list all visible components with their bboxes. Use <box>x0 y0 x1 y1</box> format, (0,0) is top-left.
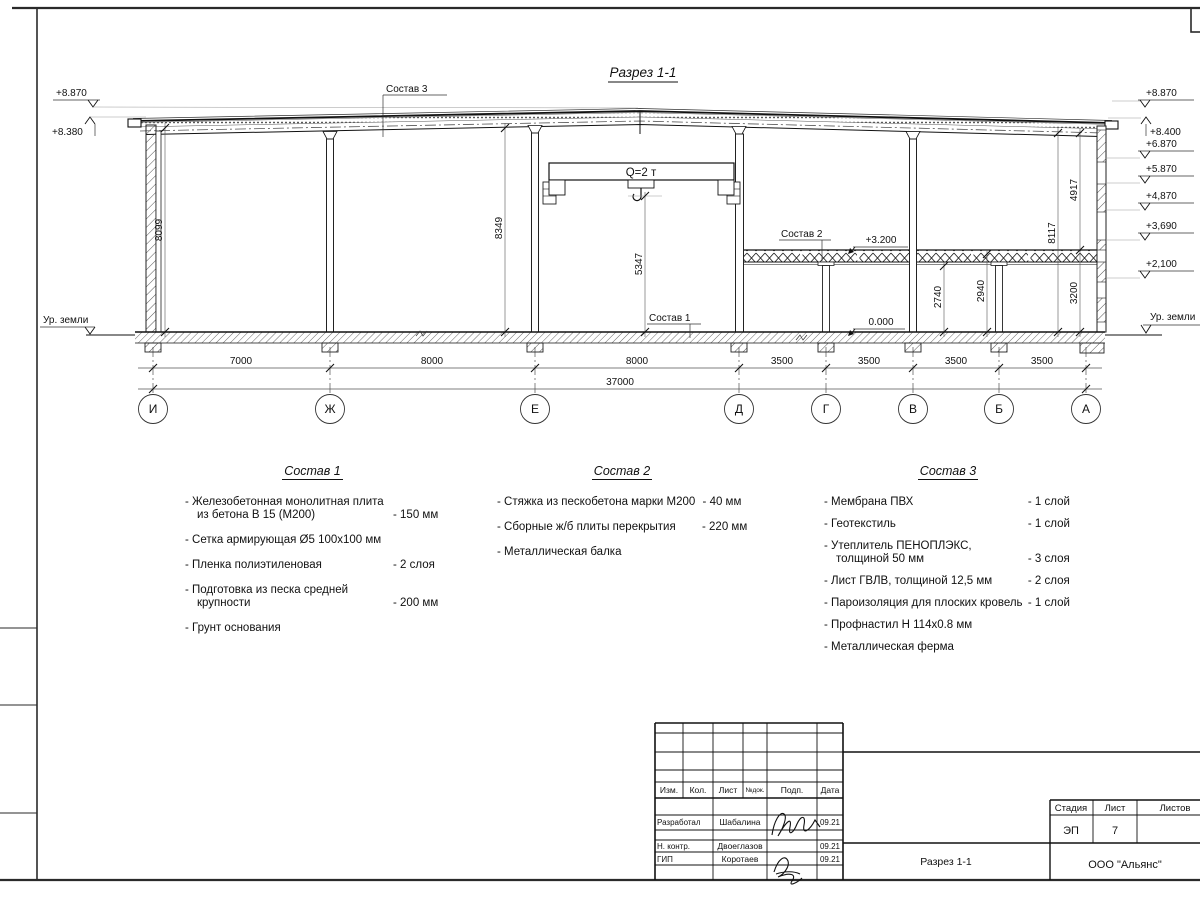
column-zh <box>327 139 334 332</box>
list-item: - Пленка полиэтиленовая - 2 слоя <box>185 559 440 572</box>
stamp-name: Коротаев <box>722 854 759 864</box>
list-item: - Железобетонная монолитная плитаиз бето… <box>185 496 440 522</box>
svg-text:8349: 8349 <box>494 216 505 239</box>
stamp-role: Н. контр. <box>657 842 690 851</box>
stamp-role: Разработал <box>657 818 701 827</box>
composition-callouts: Состав 3 Состав 2 Состав 1 <box>383 84 831 338</box>
stamp-company: ООО "Альянс" <box>1088 859 1162 871</box>
svg-text:Листов: Листов <box>1160 803 1191 814</box>
svg-text:3500: 3500 <box>858 356 881 367</box>
ground-label: Ур. земли <box>1150 312 1195 323</box>
svg-text:+5.870: +5.870 <box>1146 164 1177 175</box>
ground-label: Ур. земли <box>43 315 88 326</box>
signatures <box>772 813 820 884</box>
composition-list-3: Состав 3 - Мембрана ПВХ - 1 слой - Геоте… <box>824 465 1072 663</box>
crane-hoist <box>628 180 654 188</box>
axis-bubbles: И Ж Е Д Г В Б А <box>139 395 1101 424</box>
stamp-date: 09.21 <box>820 818 841 827</box>
composition-title: Состав 2 <box>497 465 747 478</box>
svg-text:Е: Е <box>531 402 539 416</box>
svg-text:8000: 8000 <box>626 356 649 367</box>
svg-text:+6.870: +6.870 <box>1146 139 1177 150</box>
list-item: - Мембрана ПВХ - 1 слой <box>824 496 1072 509</box>
composition-title: Состав 3 <box>824 465 1072 478</box>
svg-text:2740: 2740 <box>933 285 944 308</box>
list-item: - Грунт основания <box>185 622 440 635</box>
section-drawing: Разрез 1-1 <box>0 0 1200 900</box>
total-dimension: 37000 <box>606 377 634 388</box>
structure <box>146 125 1106 332</box>
list-item: - Сборные ж/б плиты перекрытия - 220 мм <box>497 521 747 534</box>
eave-right <box>1105 121 1118 129</box>
svg-text:Лист: Лист <box>719 785 738 795</box>
svg-text:ЭП: ЭП <box>1063 825 1079 837</box>
svg-text:3500: 3500 <box>1031 356 1054 367</box>
svg-text:7000: 7000 <box>230 356 253 367</box>
stamp-role: ГИП <box>657 855 673 864</box>
svg-text:Б: Б <box>995 402 1003 416</box>
list-item: - Стяжка из пескобетона марки М200 - 40 … <box>497 496 747 509</box>
svg-text:Стадия: Стадия <box>1055 803 1087 814</box>
svg-text:3500: 3500 <box>945 356 968 367</box>
svg-text:И: И <box>149 402 158 416</box>
column-e <box>532 133 539 332</box>
vertical-dimensions: 8099 8349 5347 8117 4917 3200 2740 2940 <box>154 123 1084 337</box>
stamp-doc-name: Разрез 1-1 <box>920 856 972 868</box>
elevation-label: +8.870 <box>56 88 87 99</box>
drawing-sheet: Разрез 1-1 <box>0 0 1200 900</box>
svg-text:+8.400: +8.400 <box>1150 127 1181 138</box>
crane-hook-icon <box>633 188 641 201</box>
stamp-date: 09.21 <box>820 855 841 864</box>
list-item: - Металлическая ферма <box>824 641 1072 654</box>
column-d <box>736 134 744 332</box>
crane-capacity-label: Q=2 т <box>626 167 657 179</box>
composition-list-2: Состав 2 - Стяжка из пескобетона марки М… <box>497 465 747 571</box>
foundation-pads <box>145 343 1104 353</box>
svg-text:Кол.: Кол. <box>690 785 707 795</box>
svg-text:8099: 8099 <box>154 218 165 241</box>
svg-text:5347: 5347 <box>634 252 645 275</box>
elevation-marks-right: +8.870 +8.400 +6.870 +5.870 +4,870 +3,69… <box>1106 88 1200 333</box>
svg-text:3500: 3500 <box>771 356 794 367</box>
post-b <box>996 266 1003 333</box>
floor <box>86 331 1162 353</box>
list-item: - Пароизоляция для плоских кровель - 1 с… <box>824 597 1072 610</box>
stamp-name: Двоеглазов <box>717 841 763 851</box>
svg-text:2940: 2940 <box>976 279 987 302</box>
list-item: - Подготовка из песка среднейкрупности -… <box>185 584 440 610</box>
composition-list-1: Состав 1 - Железобетонная монолитная пли… <box>185 465 440 647</box>
list-item: - Геотекстиль - 1 слой <box>824 518 1072 531</box>
bottom-dimensions: 7000 8000 8000 3500 3500 3500 3500 37000 <box>138 347 1102 393</box>
svg-text:8000: 8000 <box>421 356 444 367</box>
column-v <box>910 139 917 332</box>
svg-text:Дата: Дата <box>821 785 840 795</box>
roof-deck-band <box>133 113 1112 130</box>
svg-text:Изм.: Изм. <box>660 785 678 795</box>
slab-level-label: +3.200 <box>866 235 897 246</box>
stamp-name: Шабалина <box>719 817 760 827</box>
svg-text:4917: 4917 <box>1069 178 1080 201</box>
callout-sostav3: Состав 3 <box>386 84 428 95</box>
callout-sostav1: Состав 1 <box>649 313 691 324</box>
callout-sostav2: Состав 2 <box>781 229 823 240</box>
roof-bottom-chord <box>146 125 1100 137</box>
svg-text:Д: Д <box>735 402 743 416</box>
stamp-date: 09.21 <box>820 842 841 851</box>
frame-corner-box <box>1191 8 1200 32</box>
post-g <box>823 266 830 333</box>
floor-level-label: 0.000 <box>868 317 893 328</box>
list-item: - Сетка армирующая Ø5 100х100 мм <box>185 534 440 547</box>
svg-text:+4,870: +4,870 <box>1146 191 1177 202</box>
elevation-label: +8.380 <box>52 127 83 138</box>
eave-left <box>128 119 141 127</box>
list-item: - Лист ГВЛВ, толщиной 12,5 мм - 2 слоя <box>824 575 1072 588</box>
crane: Q=2 т <box>543 163 740 204</box>
sheet-frame <box>0 8 1200 880</box>
section-title: Разрез 1-1 <box>610 65 677 80</box>
composition-title: Состав 1 <box>185 465 440 478</box>
list-item: - Профнастил Н 114х0.8 мм <box>824 619 1072 632</box>
svg-text:+2,100: +2,100 <box>1146 259 1177 270</box>
svg-text:+8.870: +8.870 <box>1146 88 1177 99</box>
roof <box>128 109 1118 140</box>
svg-text:+3,690: +3,690 <box>1146 221 1177 232</box>
svg-text:3200: 3200 <box>1069 281 1080 304</box>
svg-text:Ж: Ж <box>324 402 335 416</box>
svg-text:Лист: Лист <box>1105 803 1126 814</box>
mezzanine-slab <box>744 251 1097 262</box>
svg-text:7: 7 <box>1112 825 1118 837</box>
list-item: - Утеплитель ПЕНОПЛЭКС,толщиной 50 мм - … <box>824 540 1072 566</box>
svg-text:А: А <box>1082 402 1090 416</box>
svg-text:Подп.: Подп. <box>781 785 804 795</box>
svg-text:Г: Г <box>823 402 830 416</box>
svg-text:№док.: №док. <box>745 787 764 794</box>
svg-text:8117: 8117 <box>1047 222 1058 244</box>
svg-text:В: В <box>909 402 917 416</box>
list-item: - Металлическая балка <box>497 546 747 559</box>
signature-icon <box>772 813 820 836</box>
